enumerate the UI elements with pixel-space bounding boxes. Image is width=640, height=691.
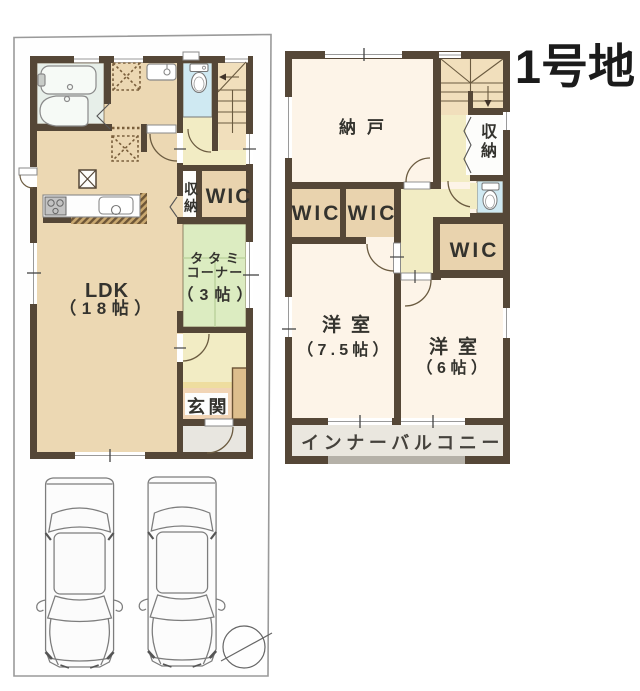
svg-text:納: 納 [184,198,198,214]
svg-text:WIC: WIC [292,202,342,225]
svg-text:WIC: WIC [450,239,500,262]
svg-text:玄: 玄 [187,396,205,417]
svg-text:室: 室 [458,335,477,358]
svg-text:（7.5帖）: （7.5帖） [297,340,392,359]
svg-text:（3帖）: （3帖） [178,285,259,304]
svg-text:洋: 洋 [322,313,341,336]
svg-text:関: 関 [209,397,227,417]
svg-text:WIC: WIC [348,202,398,225]
svg-text:収: 収 [481,123,498,141]
svg-text:1号地: 1号地 [515,40,635,93]
svg-text:タタミ: タタミ [190,251,243,266]
svg-text:納: 納 [481,141,497,160]
svg-text:コーナー: コーナー [187,265,244,280]
svg-text:室: 室 [351,313,370,336]
svg-text:WIC: WIC [206,185,253,208]
svg-text:納: 納 [339,117,356,137]
svg-text:（6帖）: （6帖） [417,358,492,377]
svg-text:洋: 洋 [429,335,448,358]
svg-text:インナーバルコニー: インナーバルコニー [301,433,504,453]
svg-text:（18帖）: （18帖） [59,298,156,318]
svg-text:戸: 戸 [367,118,384,137]
svg-text:収: 収 [184,181,199,197]
